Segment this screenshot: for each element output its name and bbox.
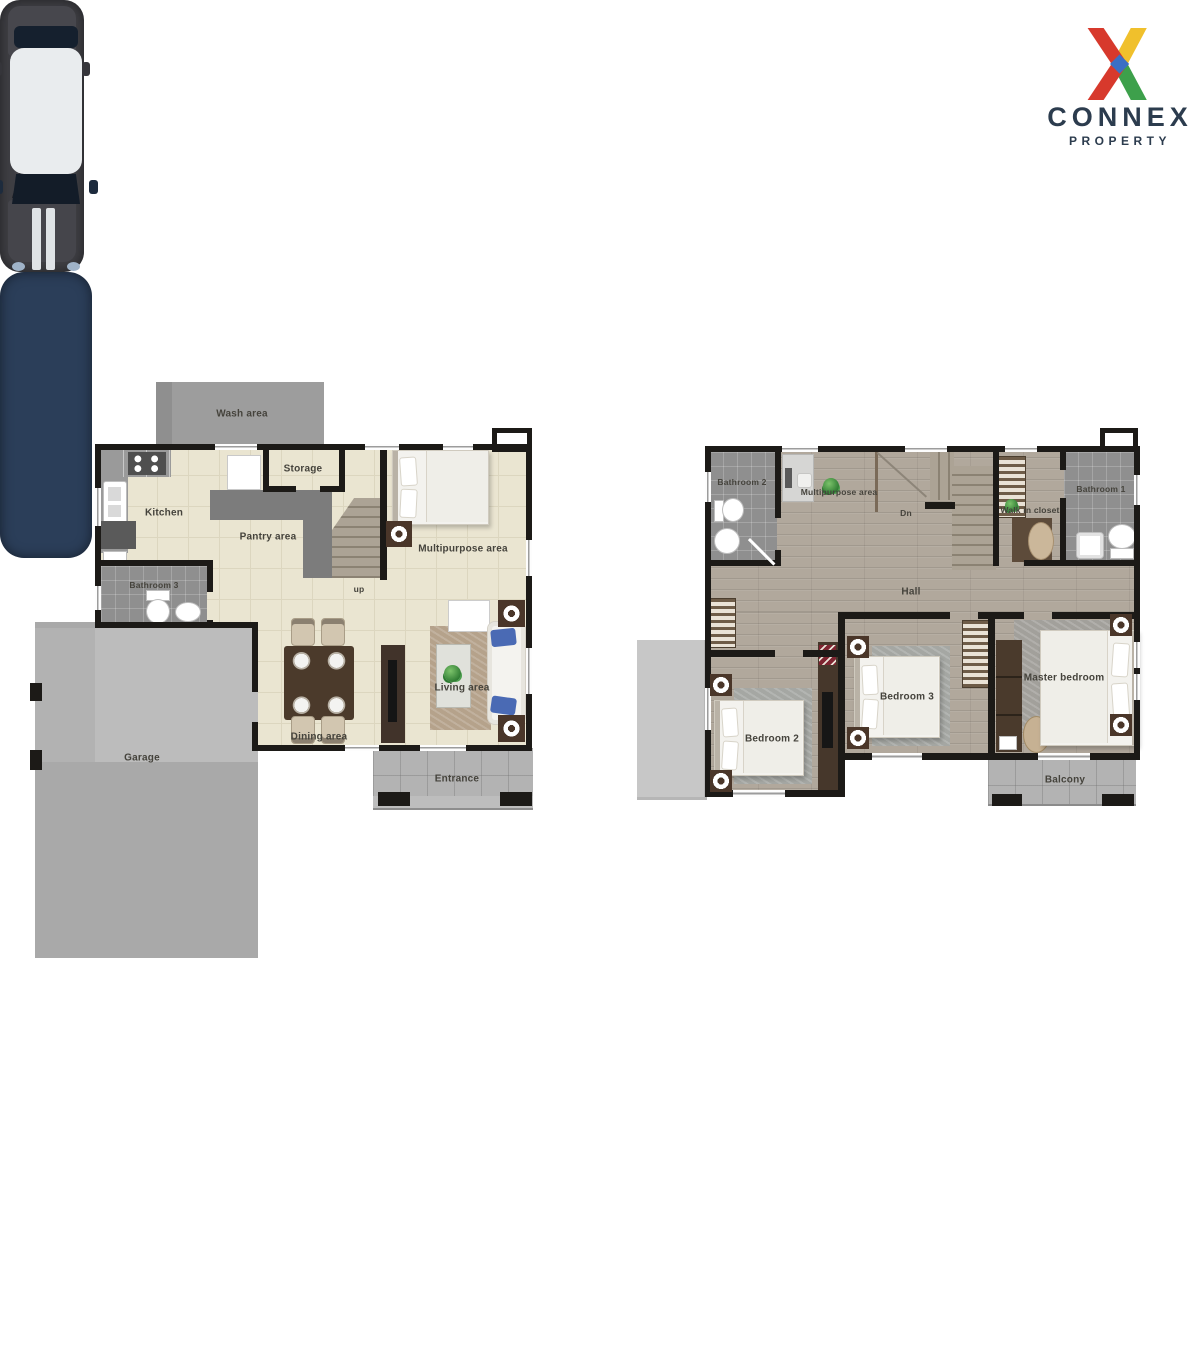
entrance-door [420,745,466,751]
label-multipurpose-area: Multipurpose area [418,544,508,555]
window [782,446,818,452]
desk-chair [797,473,812,488]
window [705,472,711,502]
window [1134,674,1140,700]
label-balcony: Balcony [1045,775,1085,786]
master-device [999,736,1017,750]
garage-stub [30,683,42,701]
stove [128,452,166,475]
label-wash-area: Wash area [216,409,267,420]
storage-wall-right [339,450,345,492]
closet-wall-bottom [993,560,998,566]
entrance-edge-line [373,808,533,810]
label-walk-in-closet: Walk in closet [1000,505,1059,515]
window [95,488,101,526]
pantry-counter-side [303,520,332,578]
stair-wall [925,502,955,509]
toilet-bowl [722,498,744,522]
car-mini [0,272,92,558]
dining-chair [321,618,345,646]
label-pantry-area: Pantry area [240,532,297,543]
downlight [1110,714,1132,736]
entrance-stub [500,792,532,806]
pillow [861,665,879,696]
label-master-bedroom: Master bedroom [1024,673,1105,684]
garage-stub [30,750,42,770]
wash-area-edge [156,382,172,450]
label-dining-area: Dining area [291,732,348,743]
downlight [847,636,869,658]
label-entrance: Entrance [435,774,479,785]
fridge [101,521,136,549]
sofa-pillow [490,628,517,648]
pillow [1111,682,1130,717]
wall-bottom [255,745,532,751]
window [733,790,785,797]
downlight [498,600,525,627]
garage-divider-wall2 [252,722,258,751]
dining-chair [291,618,315,646]
bedroom2-wall-top [705,650,775,657]
closet-bench [1028,522,1054,560]
label-bedroom2: Bedroom 2 [745,734,799,745]
blanket [426,451,488,522]
bathroom3-wall-right [207,560,213,592]
window [95,586,101,610]
sofa-pillow [490,695,517,715]
car-mirror [0,180,3,194]
plant [444,665,461,682]
label-bathroom2: Bathroom 2 [717,477,766,487]
car-rear-window [14,26,78,48]
car-headlight [67,262,80,271]
label-stairs-down: Dn [900,508,912,518]
bed-multipurpose [392,450,489,525]
garage-wall-top [95,622,258,628]
window [1134,642,1140,668]
car-trunk [8,200,76,262]
stairwell-wall [380,444,387,580]
downlight [710,674,732,696]
bed-headboard [715,701,720,775]
label-storage: Storage [284,464,323,475]
car-mirror [89,180,98,194]
pillow [399,489,417,519]
window [526,648,532,694]
car-mirror [82,62,90,76]
car-bonnet-stripe [32,208,41,270]
label-living-area: Living area [435,683,490,694]
pillow [399,456,418,486]
sink-basin [108,505,121,517]
kitchen-sink [103,481,127,525]
window [905,446,947,452]
entrance-stub [378,792,410,806]
storage-wall-bottom [263,486,296,492]
pillow [1111,642,1130,677]
downlight [498,715,525,742]
label-bathroom3: Bathroom 3 [129,580,178,590]
bedroom3-wall-top [845,612,950,619]
sink-basin [108,487,121,501]
balcony-stub [992,794,1022,806]
stair-railing [875,452,878,512]
toilet-bowl [146,599,170,624]
logo-tagline-text: PROPERTY [1040,134,1200,148]
bathroom1-wall-left2 [1060,498,1066,566]
storage-cabinet [227,455,261,490]
tv [388,660,397,722]
window [443,444,473,450]
car-mirror [0,62,2,76]
desk-monitor [785,468,792,488]
downlight [1110,614,1132,636]
label-multipurpose-area-2f: Multipurpose area [801,487,878,497]
window [1005,446,1037,452]
garage-side-strip [35,628,95,762]
window [526,540,532,576]
downlight [386,521,412,547]
bed-headboard [855,657,860,737]
bathroom2-wall-right [775,452,781,518]
downlight [710,770,732,792]
toilet-bowl [1108,524,1136,549]
bathroom2-sink [714,528,740,554]
balcony-door [1038,753,1090,760]
label-bedroom3: Bedroom 3 [880,692,934,703]
closet-wall-bottom2 [1024,560,1140,566]
window [215,444,257,450]
bed-headboard [393,451,398,524]
label-stairs-up: up [354,584,365,594]
window [365,444,399,450]
label-hall: Hall [901,587,920,598]
bathroom3-sink [175,602,201,622]
label-kitchen: Kitchen [145,508,183,519]
bathroom1-wall-left [1060,452,1066,470]
logo-brand-text: CONNEX [1040,102,1200,133]
roof-below-block [637,640,707,800]
pillow [721,740,739,770]
living-console [448,600,490,632]
bathroom1-sink [1076,532,1104,559]
hall-closet-rack [710,598,736,648]
car-windshield [12,174,80,204]
car-roof [10,48,82,174]
balcony-stub [1102,794,1134,806]
garage-floor [95,628,258,762]
toilet-tank [1110,548,1134,559]
car-headlight [12,262,25,271]
bedroom3-closet-rack [962,620,990,688]
floorplan-page: CONNEX PROPERTY [0,0,1200,1350]
label-garage: Garage [124,753,160,764]
car-bonnet-stripe [46,208,55,270]
stairs-upper-run [930,452,954,500]
closet-wall-left [993,452,999,566]
window [345,745,379,751]
garage-divider-wall [252,622,258,692]
connex-x-icon [1076,28,1160,100]
downlight [847,727,869,749]
dining-table [284,646,354,720]
stairs-down [952,466,996,570]
pillow [721,707,739,737]
window [872,753,922,760]
bathroom3-wall-top [95,560,213,566]
blanket [1041,631,1108,743]
bedroom3-master-divider [988,612,995,760]
label-bathroom1: Bathroom 1 [1076,484,1125,494]
pantry-counter [210,490,332,520]
wall-right [526,444,532,751]
window [1134,475,1140,505]
pillow [861,698,879,729]
tv [822,692,833,748]
